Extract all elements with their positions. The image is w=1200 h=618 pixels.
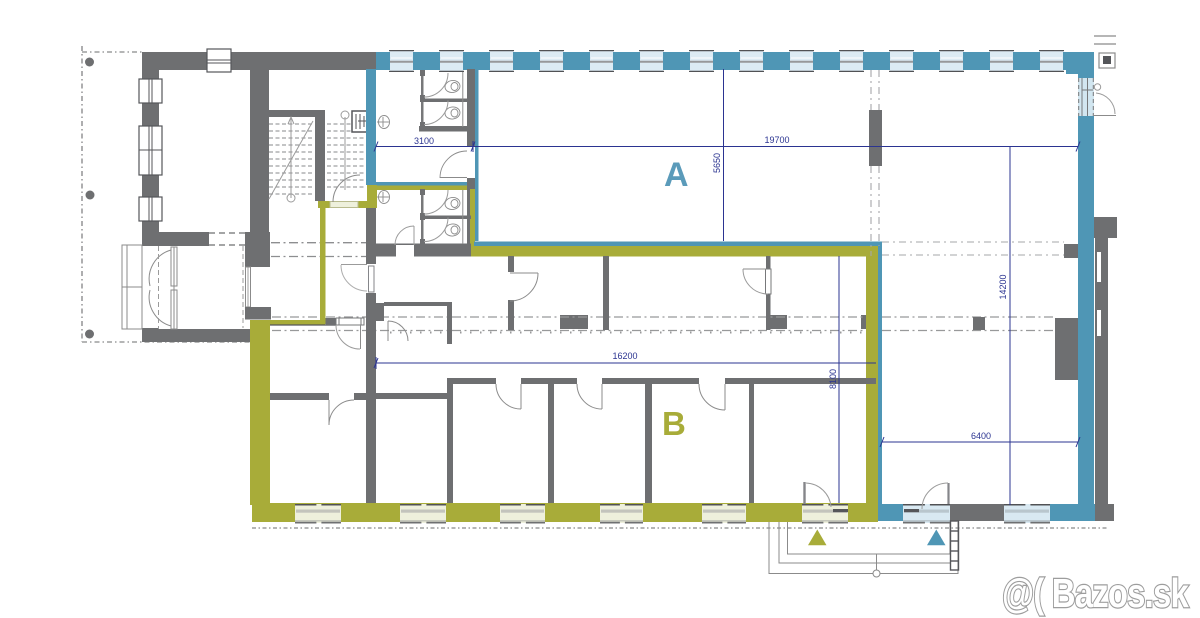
svg-text:@( Bazos.sk: @( Bazos.sk [1002, 570, 1189, 616]
svg-text:A: A [664, 156, 689, 194]
svg-text:16200: 16200 [612, 351, 637, 361]
svg-text:14200: 14200 [998, 274, 1008, 299]
svg-text:6400: 6400 [971, 431, 991, 441]
svg-text:8100: 8100 [828, 369, 838, 389]
svg-text:B: B [662, 405, 686, 442]
svg-text:19700: 19700 [764, 135, 789, 145]
svg-text:5650: 5650 [712, 153, 722, 173]
svg-text:3100: 3100 [414, 136, 434, 146]
